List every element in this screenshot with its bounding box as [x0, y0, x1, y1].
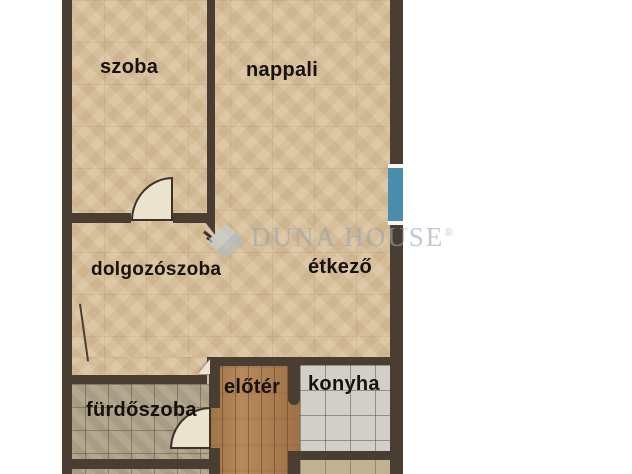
window-glass [388, 168, 403, 221]
wall-konyha-top [288, 357, 403, 365]
wall-left-exterior [62, 0, 72, 474]
registered-trademark-symbol: ® [444, 225, 453, 239]
room-label-furdoszoba: fürdőszoba [86, 399, 197, 422]
room-label-dolgozoszoba: dolgozószoba [91, 259, 221, 281]
wall-furdoszoba-eloter-upper [209, 357, 220, 408]
wall-eloter-top [207, 357, 300, 366]
floor-open-living-area [62, 0, 403, 366]
wall-szoba-nappali-divider [207, 0, 215, 223]
window-marker [388, 164, 403, 225]
wall-furdoszoba-bottom [62, 459, 220, 469]
room-label-szoba: szoba [100, 56, 158, 79]
floorplan-canvas: szoba nappali dolgozószoba étkező előtér… [0, 0, 632, 474]
wall-dolgozoszoba-bottom [62, 375, 207, 384]
wall-szoba-bottom-left [62, 213, 131, 223]
room-label-eloter: előtér [224, 376, 280, 399]
wall-konyha-bottom [288, 451, 403, 460]
door-swing-mark-eloter [198, 359, 210, 374]
room-label-etkezo: étkező [308, 256, 372, 279]
room-label-konyha: konyha [308, 373, 380, 396]
room-label-nappali: nappali [246, 59, 318, 82]
wall-right-exterior [390, 0, 403, 474]
